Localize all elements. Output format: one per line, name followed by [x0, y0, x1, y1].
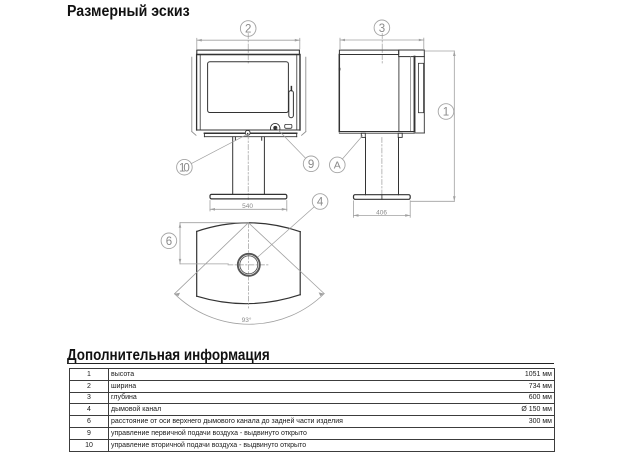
- svg-text:406: 406: [376, 210, 387, 217]
- svg-text:9: 9: [308, 159, 314, 171]
- svg-text:4: 4: [317, 197, 324, 209]
- svg-text:93°: 93°: [242, 316, 252, 324]
- svg-text:1: 1: [443, 107, 449, 119]
- svg-text:6: 6: [166, 236, 172, 248]
- svg-text:540: 540: [242, 203, 253, 210]
- svg-text:10: 10: [179, 162, 190, 174]
- svg-text:A: A: [334, 160, 341, 172]
